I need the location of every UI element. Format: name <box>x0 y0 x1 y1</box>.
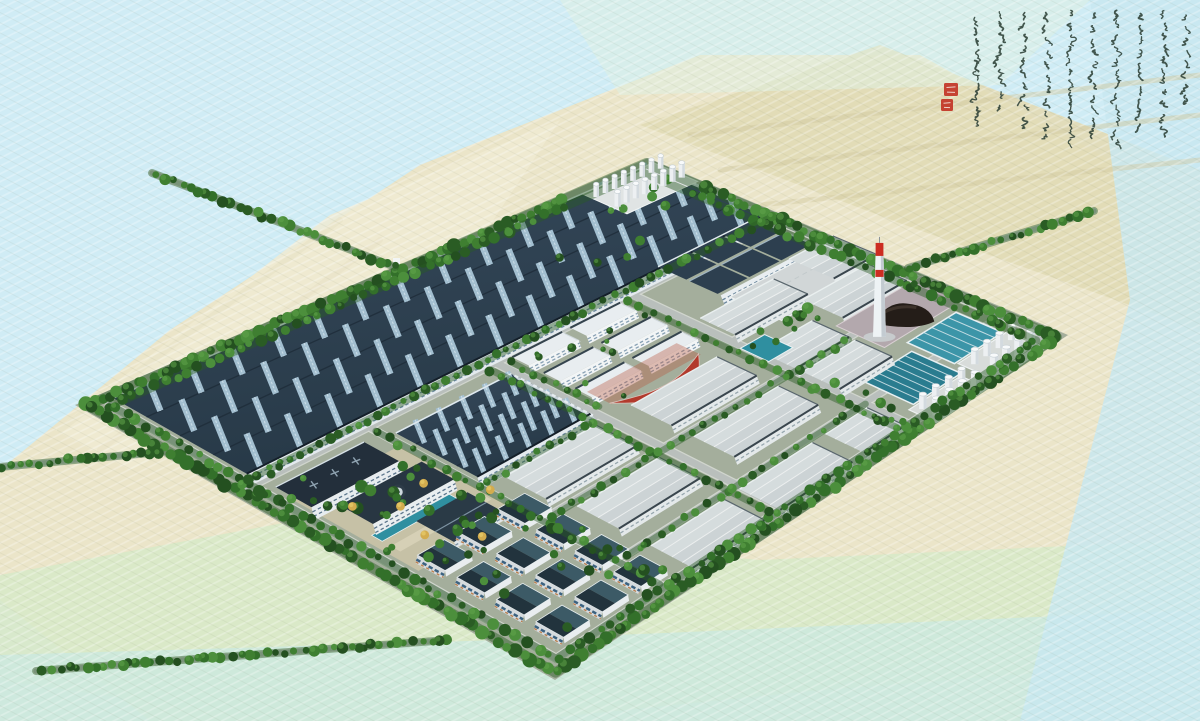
aerial-rendering <box>0 0 1200 721</box>
rendering-canvas <box>0 0 1200 721</box>
